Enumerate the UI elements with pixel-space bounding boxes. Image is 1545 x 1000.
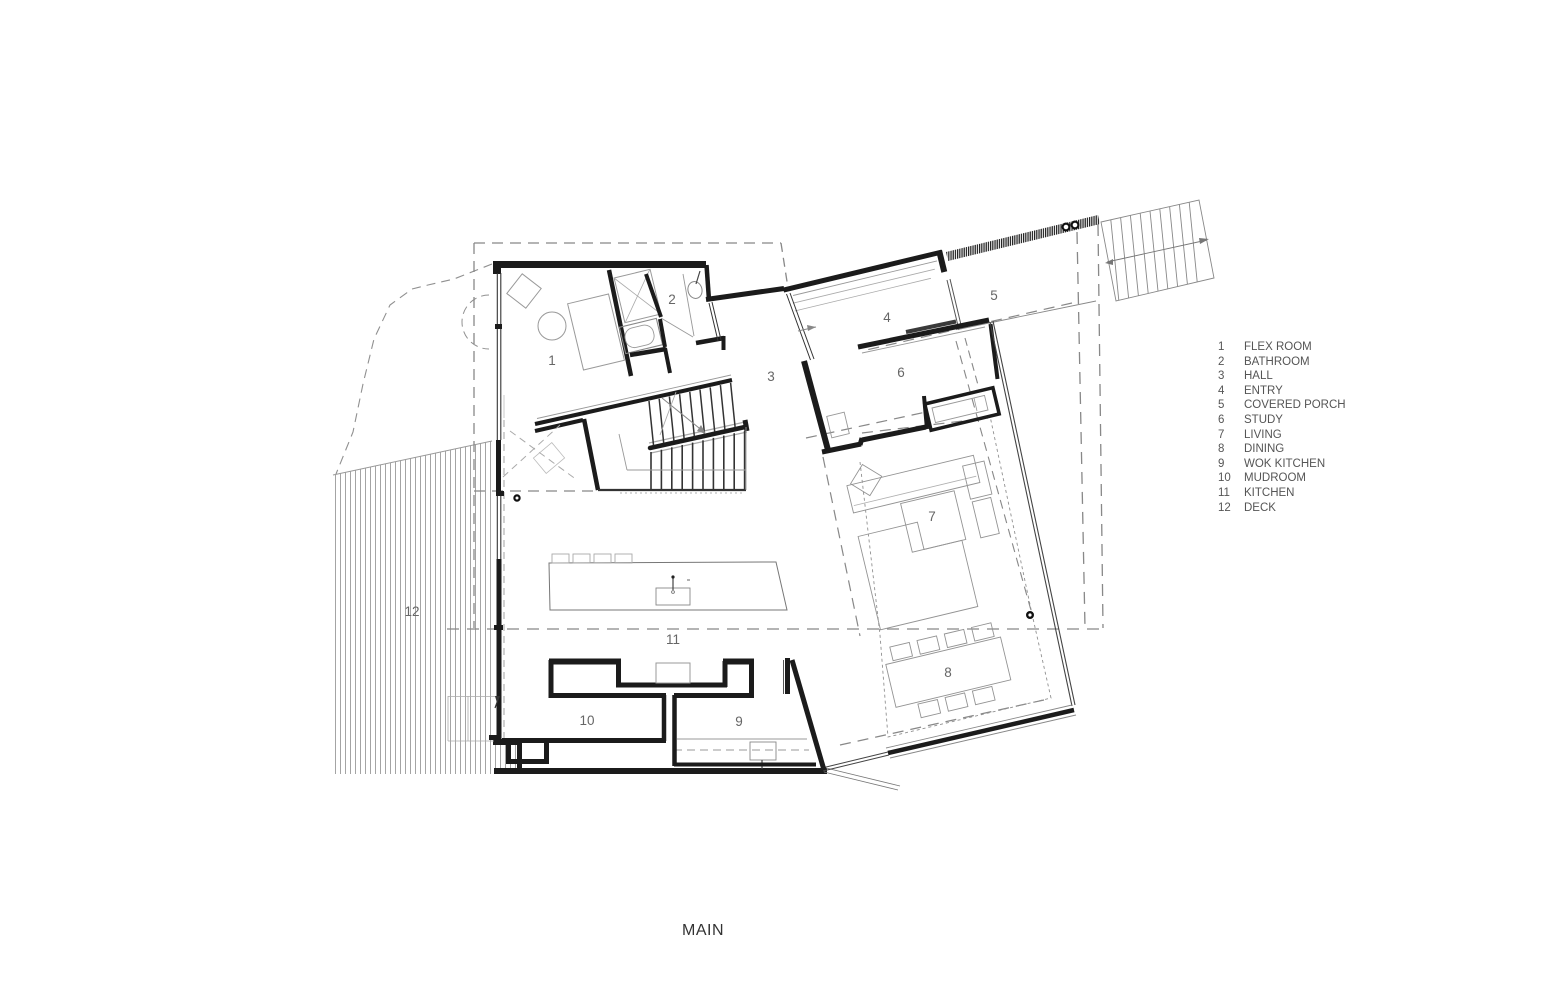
svg-text:MUDROOM: MUDROOM [1244, 472, 1306, 484]
svg-text:1: 1 [1218, 341, 1224, 353]
svg-text:DINING: DINING [1244, 443, 1284, 455]
svg-text:COVERED PORCH: COVERED PORCH [1244, 399, 1346, 411]
svg-text:5: 5 [990, 288, 998, 303]
svg-text:5: 5 [1218, 399, 1224, 411]
svg-text:12: 12 [404, 604, 419, 619]
svg-text:2: 2 [1218, 356, 1224, 368]
svg-text:8: 8 [944, 665, 952, 680]
svg-text:2: 2 [668, 292, 676, 307]
svg-text:9: 9 [735, 714, 743, 729]
svg-text:KITCHEN: KITCHEN [1244, 487, 1294, 499]
svg-text:DECK: DECK [1244, 502, 1276, 514]
svg-text:4: 4 [1218, 385, 1225, 397]
svg-text:STUDY: STUDY [1244, 414, 1283, 426]
svg-text:6: 6 [897, 365, 905, 380]
svg-text:3: 3 [767, 369, 775, 384]
svg-text:11: 11 [1218, 487, 1230, 499]
svg-text:9: 9 [1218, 458, 1224, 470]
svg-text:LIVING: LIVING [1244, 429, 1282, 441]
svg-text:3: 3 [1218, 370, 1224, 382]
svg-text:WOK KITCHEN: WOK KITCHEN [1244, 458, 1325, 470]
svg-text:7: 7 [928, 509, 936, 524]
svg-text:4: 4 [883, 310, 891, 325]
svg-text:10: 10 [579, 713, 594, 728]
svg-text:1: 1 [548, 353, 556, 368]
svg-text:10: 10 [1218, 472, 1231, 484]
svg-text:8: 8 [1218, 443, 1224, 455]
svg-text:ENTRY: ENTRY [1244, 385, 1283, 397]
svg-text:7: 7 [1218, 429, 1224, 441]
svg-text:MAIN: MAIN [682, 922, 724, 939]
svg-text:6: 6 [1218, 414, 1224, 426]
svg-text:HALL: HALL [1244, 370, 1273, 382]
svg-text:11: 11 [666, 632, 680, 647]
svg-text:12: 12 [1218, 502, 1231, 514]
svg-text:FLEX ROOM: FLEX ROOM [1244, 341, 1312, 353]
svg-text:BATHROOM: BATHROOM [1244, 356, 1310, 368]
